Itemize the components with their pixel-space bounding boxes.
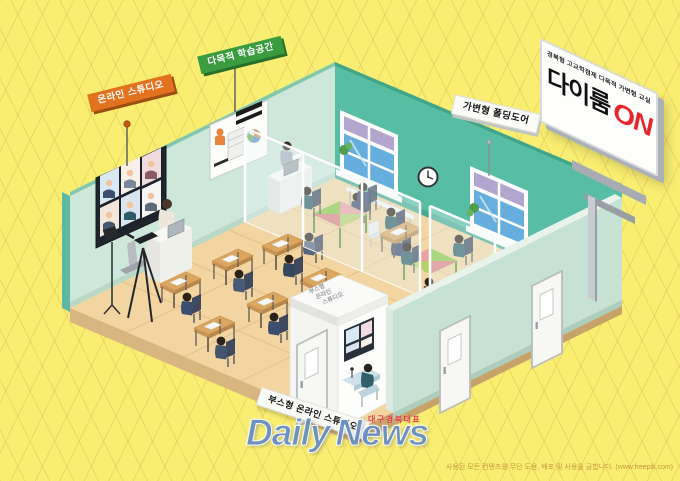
watermark-tagline: 대구경북대표 <box>368 414 421 425</box>
watermark: DailyNews 대구경북대표 <box>246 412 428 466</box>
microphone-icon <box>350 367 354 371</box>
wall-clock-icon <box>419 168 438 187</box>
illustration-canvas: 부스형 온라인 스튜디오 온라인 스튜디오 다목적 학습공간 가변형 폴딩도어 <box>0 0 680 481</box>
footer-notice: 사용된 모든 컨텐츠를 무단 도용, 배포 및 사용을 금합니다. (www.f… <box>446 462 673 472</box>
watermark-word1: Daily <box>246 412 329 453</box>
